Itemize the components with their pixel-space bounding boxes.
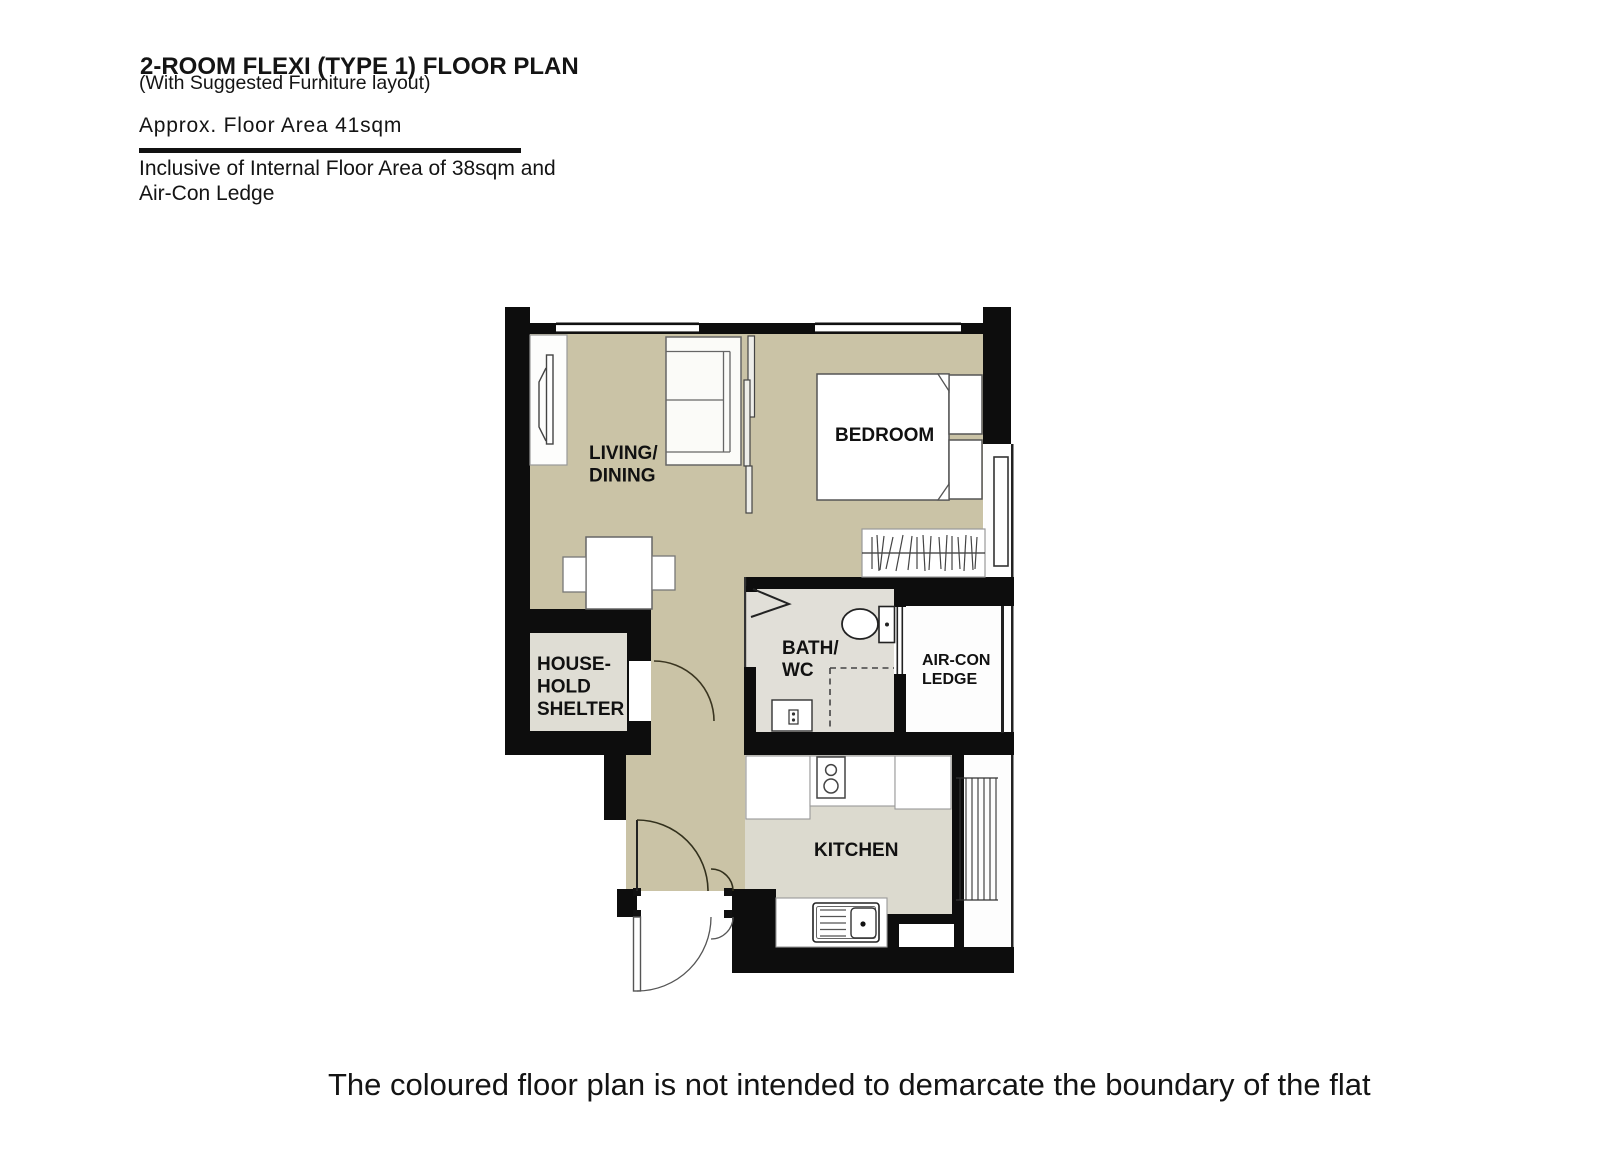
svg-text:AIR-CON: AIR-CON [922, 652, 990, 669]
svg-text:HOUSE-: HOUSE- [537, 654, 611, 675]
svg-text:KITCHEN: KITCHEN [814, 840, 898, 861]
svg-text:BATH/: BATH/ [782, 638, 839, 659]
svg-text:HOLD: HOLD [537, 677, 591, 698]
svg-text:LEDGE: LEDGE [922, 671, 977, 688]
svg-text:WC: WC [782, 660, 814, 681]
svg-text:BEDROOM: BEDROOM [835, 425, 934, 446]
svg-text:DINING: DINING [589, 466, 656, 487]
svg-text:SHELTER: SHELTER [537, 699, 625, 720]
svg-text:LIVING/: LIVING/ [589, 443, 658, 464]
